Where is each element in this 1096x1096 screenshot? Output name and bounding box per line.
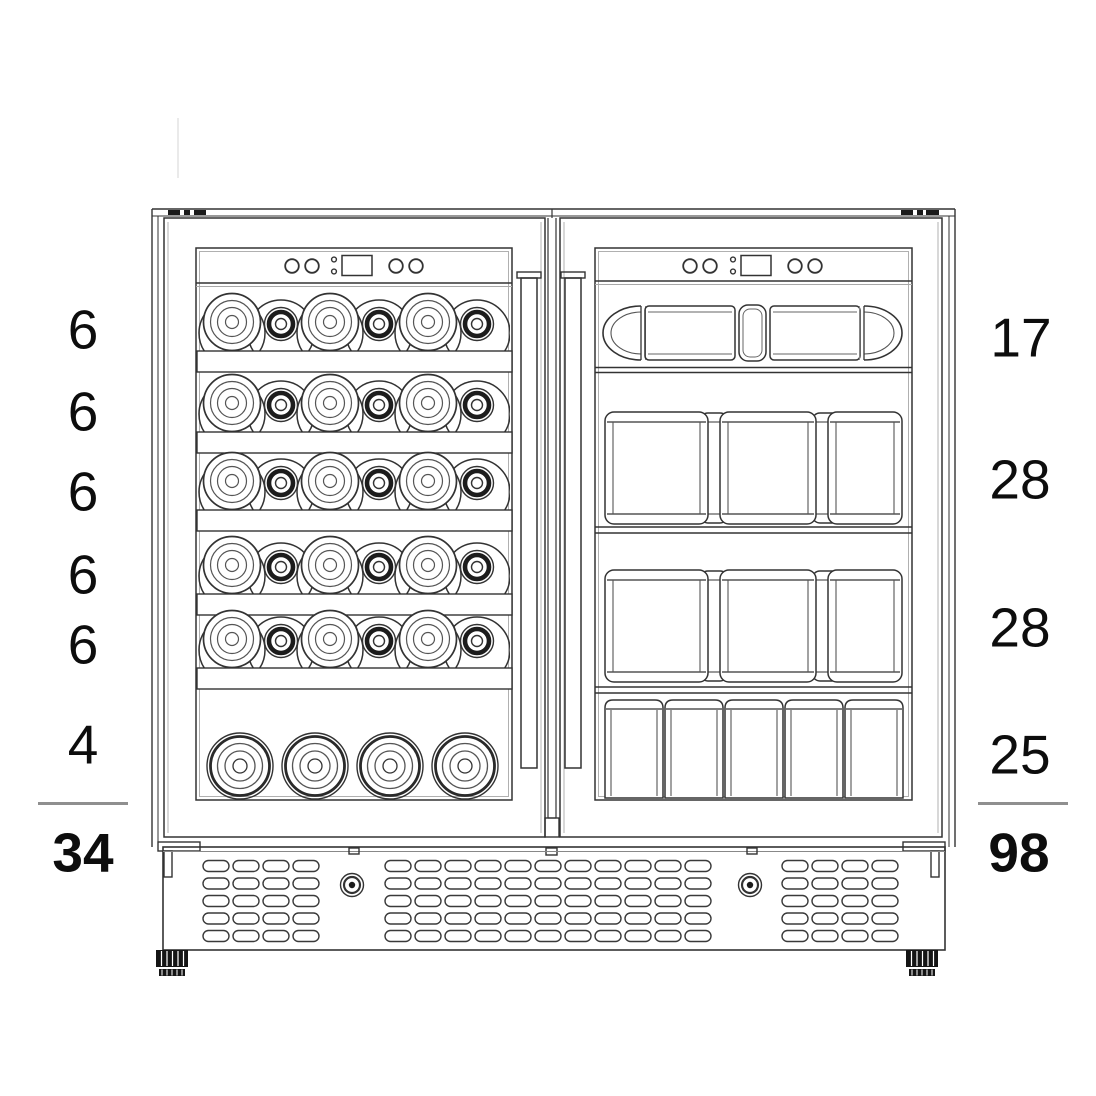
wine-shelf-board-3 (197, 510, 512, 531)
vent-grille (163, 847, 945, 950)
left-sum-rule (38, 802, 128, 805)
right-capacity-row-3: 28 (989, 601, 1050, 656)
wine-shelf-board-4 (197, 594, 512, 615)
control-panel-left (285, 256, 423, 276)
center-mullion (545, 218, 559, 855)
right-capacity-row-1: 17 (990, 311, 1051, 366)
leveling-foot-left (156, 950, 188, 976)
wine-shelf-board-1 (197, 351, 512, 372)
vent-screw-2 (739, 874, 762, 897)
right-capacity-total: 98 (988, 826, 1049, 881)
right-capacity-row-2: 28 (989, 453, 1050, 508)
wine-shelf-board-2 (197, 432, 512, 453)
can-shelf-row-3 (605, 700, 903, 798)
horizontal-bottle-shelf (603, 305, 902, 361)
right-sum-rule (978, 802, 1068, 805)
left-capacity-total: 34 (52, 826, 113, 881)
vent-screw-1 (341, 874, 364, 897)
left-capacity-row-3: 6 (68, 465, 99, 520)
left-door-handle (517, 272, 541, 768)
control-panel-right (683, 256, 822, 276)
right-capacity-row-4: 25 (989, 728, 1050, 783)
right-shelf-line-3 (595, 687, 912, 693)
left-capacity-row-6: 4 (68, 718, 99, 773)
right-shelf-line-2 (595, 527, 912, 533)
right-shelf-line-1 (595, 368, 912, 373)
can-shelf-row-2 (605, 570, 902, 682)
leveling-foot-right (906, 950, 938, 976)
left-capacity-row-5: 6 (68, 618, 99, 673)
wine-shelf-row-6 (207, 733, 498, 799)
right-door-handle (561, 272, 585, 768)
left-capacity-row-4: 6 (68, 548, 99, 603)
left-capacity-row-2: 6 (68, 385, 99, 440)
can-shelf-row-1 (605, 412, 902, 524)
wine-shelf-board-5 (197, 668, 512, 689)
capacity-diagram: 6 6 6 6 6 4 34 17 28 28 25 98 (0, 0, 1096, 1096)
left-capacity-row-1: 6 (68, 303, 99, 358)
cooler-line-drawing (0, 0, 1096, 1096)
